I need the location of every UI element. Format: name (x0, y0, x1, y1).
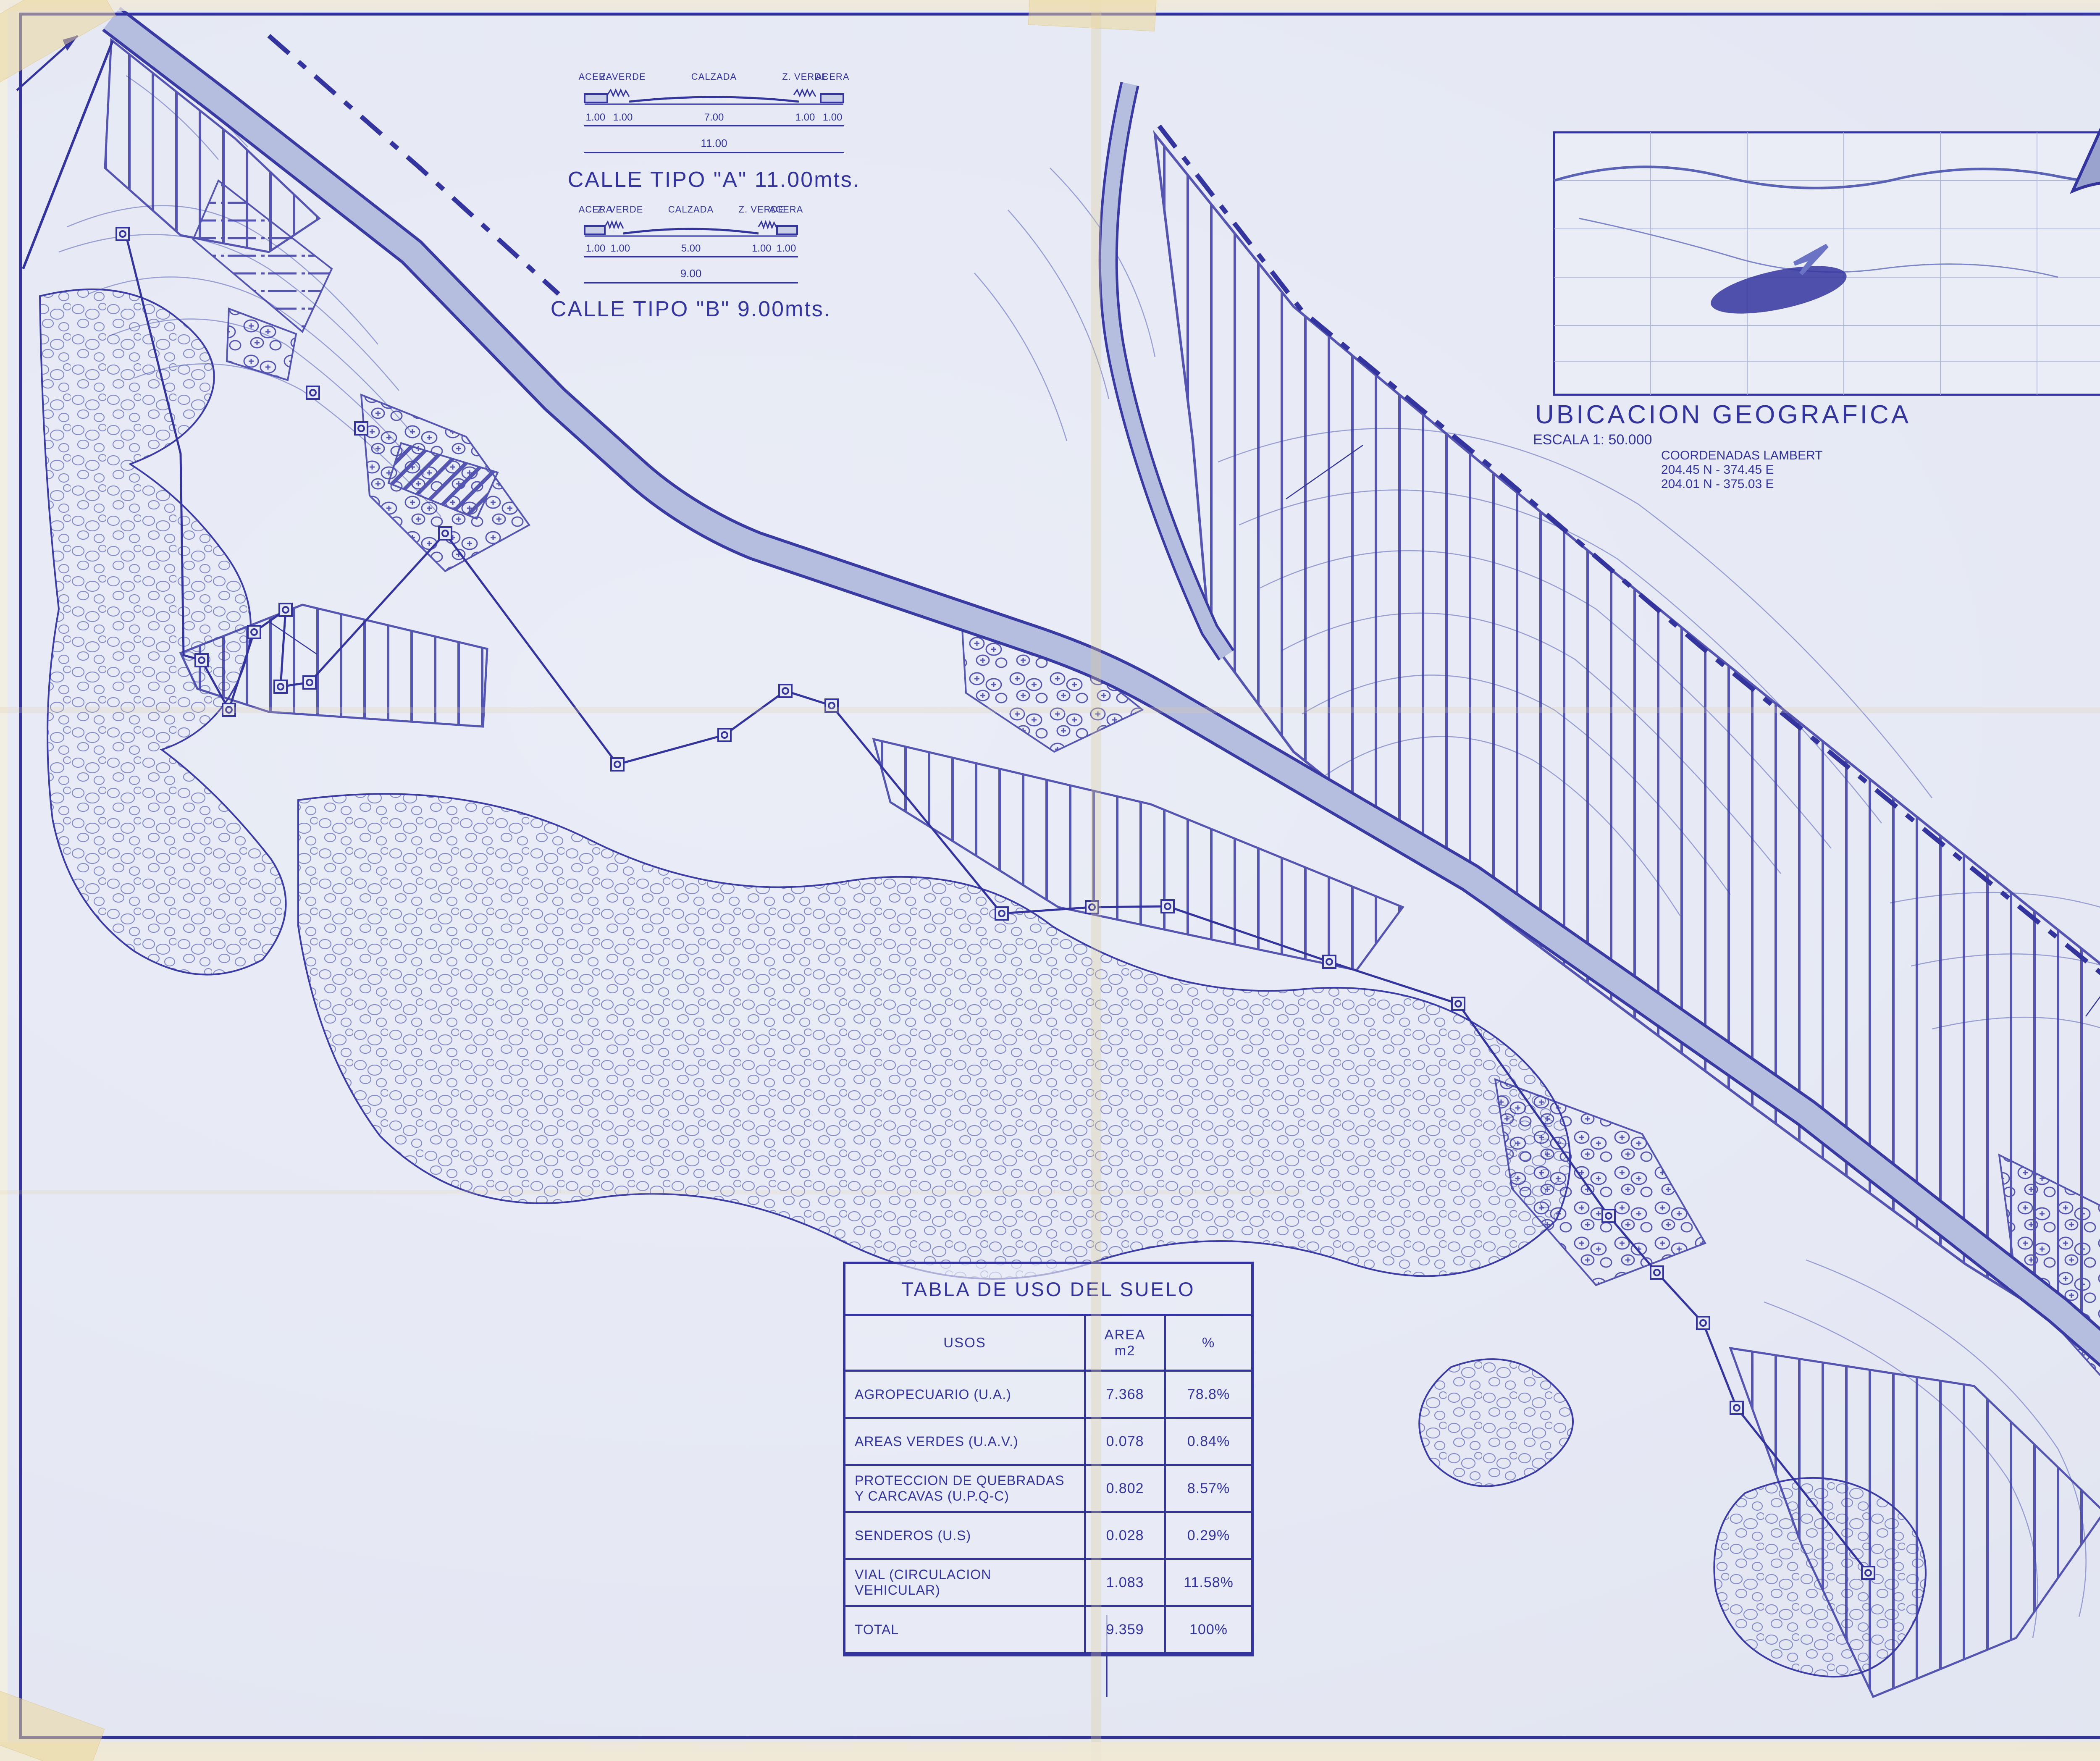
map-labels-layer (0, 0, 2100, 1761)
scan-edge-bottom (0, 1742, 2100, 1761)
fold-crease-vertical (1091, 0, 1101, 1761)
fold-crease-horizontal-2 (0, 1190, 1302, 1194)
scanned-plan-sheet: { "palette":{"ink":"#34349e","teal":"#1f… (0, 0, 2100, 1761)
fold-crease-horizontal (0, 707, 2100, 713)
